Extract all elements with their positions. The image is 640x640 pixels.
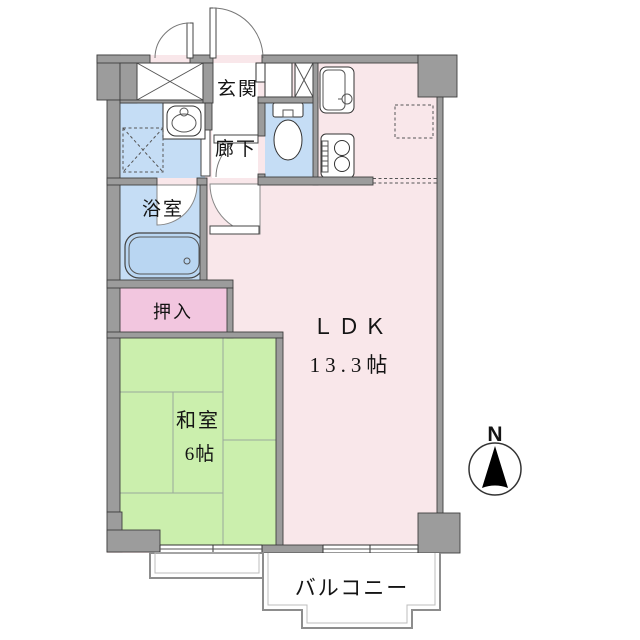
wall-washitsu-right [276,338,283,546]
wall-oshiire-right [227,288,233,338]
wall-washroom-bottom [107,178,157,185]
yokushitsu-label: 浴室 [142,198,184,220]
wall-bathroom-right [200,185,207,282]
ldk-door-leaf [210,226,259,234]
wall-toilet-top [258,97,318,103]
genkan-label: 玄関 [217,78,259,100]
pillar-bottom-right [418,513,460,553]
wall-washroom-top [120,100,212,103]
balcony-rail-narrow [150,553,263,578]
wall-kitchen-toilet [313,63,318,185]
shoe-cabinet-box [265,63,292,97]
washitsu-label: 和室 [176,409,220,432]
entrance-door-leaf [210,8,216,58]
wall-closet-left [120,63,137,103]
floor-plan-page: N 玄関 廊下 浴室 押入 和室 6帖 ＬＤＫ 13.3帖 バルコニー [0,0,640,640]
compass: N [469,423,521,495]
wall-right [437,97,443,513]
rouka-label: 廊下 [215,138,257,160]
ldk-size-label: 13.3帖 [310,353,393,377]
room-washitsu [120,338,276,546]
oshiire-label: 押入 [153,302,193,322]
wall-toilet-kitchen-bottom [258,177,373,185]
wall-genkan-left [203,63,213,103]
wall-left [107,100,120,512]
balcony-label: バルコニー [295,576,410,600]
floor-plan-canvas: N 玄関 廊下 浴室 押入 和室 6帖 ＬＤＫ 13.3帖 バルコニー [0,0,640,640]
washitsu-window [160,545,262,553]
storage-door-swing [155,23,190,58]
entrance-door-swing [213,8,263,58]
storage-closet-box [137,63,203,100]
kitchen-sink [320,67,354,113]
ldk-window [323,545,418,553]
wall-oshiire-bottom [107,332,283,338]
meter-box [295,63,313,97]
pillar-bottom-left-b [107,530,160,552]
wall-top-a [97,55,150,63]
stove [321,134,354,178]
bathtub [125,233,203,278]
pillar-top-right [418,55,457,97]
entrance-doors [155,8,263,58]
wall-bottom-middle [262,545,323,553]
toilet-fixture [273,103,303,160]
storage-door-leaf [187,23,193,58]
washbasin [163,103,205,139]
ldk-label: ＬＤＫ [312,314,390,339]
wall-corridor-left [205,103,212,130]
wall-bathroom-top-right [197,178,207,185]
wall-bathroom-oshiire [107,280,233,288]
washitsu-size-label: 6帖 [185,443,216,465]
wall-top-c [262,55,418,63]
